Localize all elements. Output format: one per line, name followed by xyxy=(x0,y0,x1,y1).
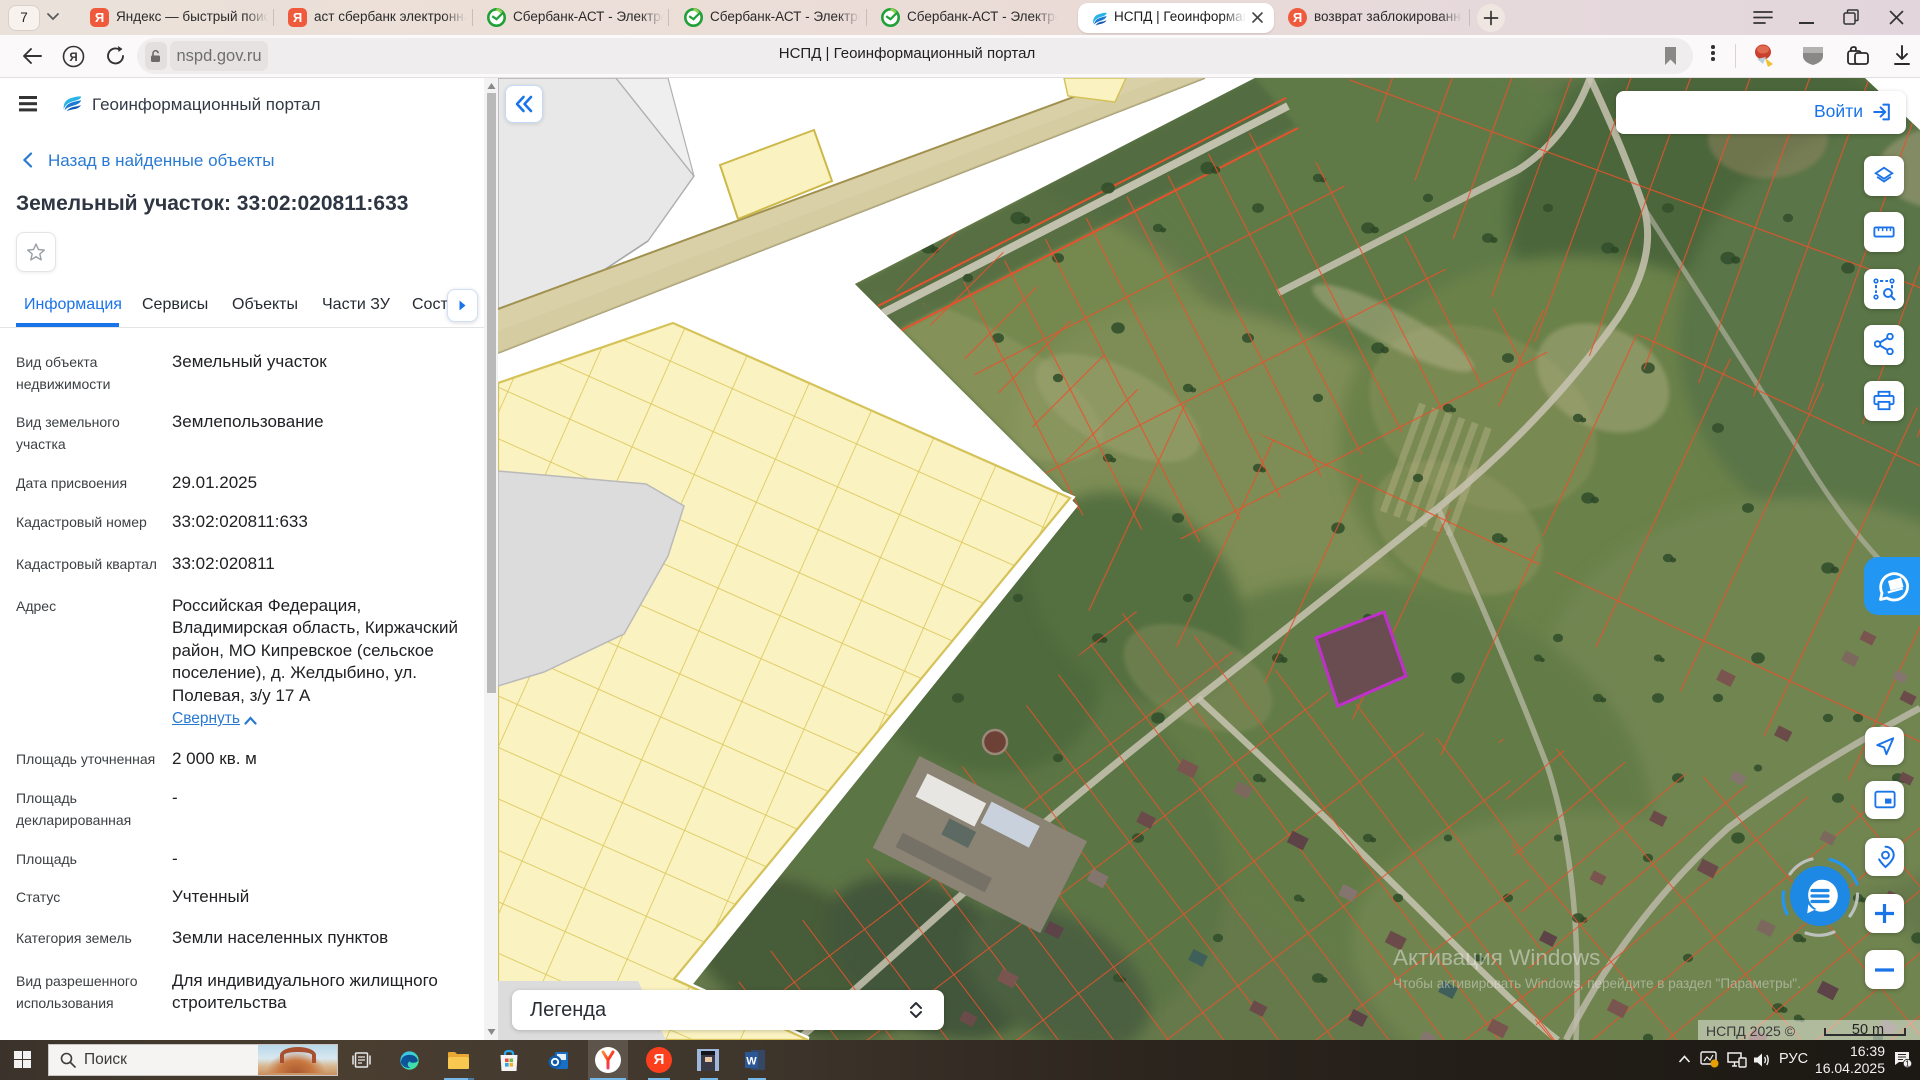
svg-text:Я: Я xyxy=(69,52,77,64)
svg-text:W: W xyxy=(746,1056,757,1068)
svg-text:1: 1 xyxy=(1905,1059,1910,1068)
